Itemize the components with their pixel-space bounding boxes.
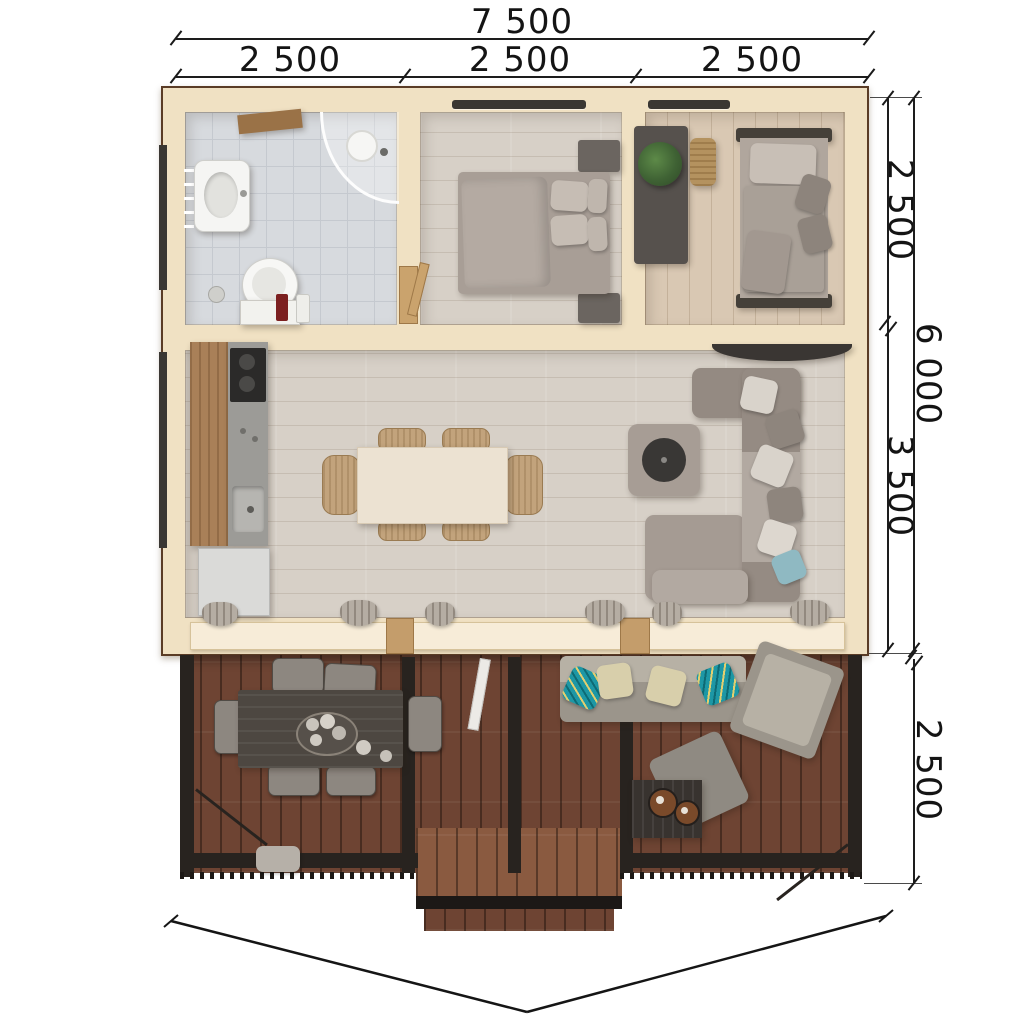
toilet-tank (240, 300, 300, 325)
door-mullion (386, 618, 414, 654)
cosmetic-bottle-red (276, 294, 288, 321)
outdoor-pillow (596, 662, 634, 700)
outdoor-chair (272, 658, 324, 694)
bed-pillow (550, 180, 589, 213)
dim-segment-2-label: 2 500 (450, 40, 590, 80)
window-sill (412, 622, 622, 650)
decor-coaster (380, 750, 392, 762)
window-bedroom1 (452, 100, 586, 109)
counter-control (240, 428, 246, 434)
window-left-bathroom (159, 145, 167, 290)
bed-pillow (550, 214, 589, 247)
potted-plant (638, 142, 682, 186)
window-sill (648, 622, 845, 650)
shower-head (346, 130, 378, 162)
window-bedroom2 (648, 100, 730, 109)
wooden-tray (674, 800, 700, 826)
window-sill (190, 622, 388, 650)
curtain (340, 600, 378, 626)
decor-ball (306, 718, 319, 731)
towel-on-rail (256, 846, 300, 872)
railing-left (180, 655, 194, 877)
curtain (585, 600, 625, 626)
cooktop-burner (239, 354, 255, 370)
outdoor-chair (268, 764, 320, 796)
throw-blanket (740, 229, 792, 295)
cosmetic-bottle-white (296, 294, 310, 323)
bed-pillow (587, 179, 608, 214)
dim-terrace-depth-label: 2 500 (910, 715, 946, 825)
dim-segment-1-label: 2 500 (220, 40, 360, 80)
dim-overall-depth-label: 6 000 (910, 319, 946, 429)
toilet-brush (208, 286, 225, 303)
sofa-pillow (739, 375, 779, 415)
decor-ball (310, 734, 322, 746)
stool-basket (690, 138, 716, 186)
cooktop-burner (239, 376, 255, 392)
dining-armchair (505, 455, 543, 515)
dim-segment-3-label: 2 500 (682, 40, 822, 80)
outdoor-chair (326, 766, 376, 796)
window-left-kitchen (159, 352, 167, 548)
outdoor-chair (408, 696, 442, 752)
railing-balusters (180, 872, 418, 879)
sink-faucet (240, 190, 247, 197)
terrace-post (508, 657, 521, 873)
shower-drain (380, 148, 388, 156)
curtain (790, 600, 830, 626)
dining-armchair (322, 455, 360, 515)
bed-pillow (587, 217, 608, 252)
nightstand (578, 140, 620, 172)
curtain (652, 602, 682, 626)
curtain (202, 602, 238, 626)
floor-plan-canvas: 7 500 2 500 2 500 2 500 2 500 3 500 6 00… (0, 0, 1024, 1024)
counter-control (252, 436, 258, 442)
railing-balusters (620, 872, 862, 879)
kitchen-faucet (247, 506, 254, 513)
sink-basin (204, 172, 238, 218)
decor-coaster (356, 740, 371, 755)
decor-ball (332, 726, 346, 740)
dim-total-width-label: 7 500 (452, 2, 592, 42)
sofa-armrest (652, 570, 748, 604)
dim-segments-line (176, 76, 869, 78)
nightstand (578, 293, 620, 323)
tray-cup (681, 807, 688, 814)
door-mullion (620, 618, 650, 654)
tray-cup (656, 796, 664, 804)
decor-ball (320, 714, 335, 729)
terrace-post (402, 657, 415, 873)
curtain (425, 602, 455, 626)
kitchen-tall-cabinet (190, 342, 228, 546)
bed-duvet (461, 177, 551, 290)
tray-handle (661, 457, 667, 463)
towel-rail (184, 162, 194, 228)
dining-table (357, 447, 508, 524)
step-edge (416, 896, 622, 909)
step-tread (424, 909, 614, 931)
railing-right (848, 655, 862, 877)
